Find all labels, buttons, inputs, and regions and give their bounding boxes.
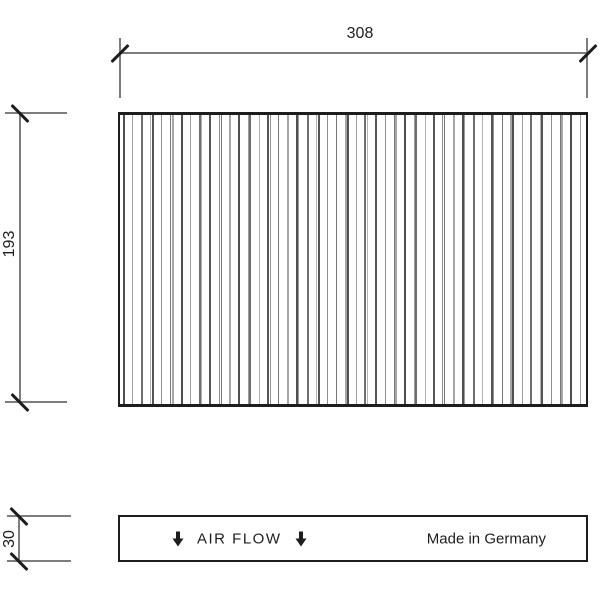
pleat-line [190,115,191,404]
down-arrow-icon [295,531,307,546]
pleat-line [327,115,328,404]
pleat-line [364,115,366,404]
pleat-line [512,115,514,404]
pleat-line [270,115,271,404]
pleat-line [482,115,483,404]
pleat-line [307,115,309,404]
pleat-line [415,115,417,404]
pleat-line [150,115,151,404]
pleat-line [316,115,317,404]
pleat-line [464,115,465,404]
pleat-line [502,115,503,404]
pleat-line [259,115,260,404]
pleat-line [347,115,349,404]
pleat-line [473,115,475,404]
pleat-line [298,115,299,404]
label-box: AIR FLOW Made in Germany [118,515,588,562]
pleat-line [318,115,320,404]
pleat-line [453,115,455,404]
pleat-line [278,115,279,404]
height-extension-line-top [5,112,67,114]
depth-dimension-label: 30 [2,530,18,548]
pleat-line [442,115,443,404]
pleat-line [219,115,220,404]
pleat-line [249,115,251,404]
pleat-line [493,115,494,404]
pleat-line [201,115,202,404]
pleat-line [522,115,523,404]
pleat-container [120,115,586,404]
pleat-line [229,115,231,404]
filter-pleated-element [118,112,588,407]
pleat-line [336,115,337,404]
pleat-line [404,115,406,404]
pleat-line [238,115,240,404]
technical-drawing-canvas: 308 193 30 AIR FLOW Made in Germany [0,0,600,600]
pleat-line [385,115,386,404]
height-dimension-line [19,114,21,403]
pleat-line [570,115,572,404]
height-extension-line-bottom [5,401,67,403]
height-dimension-label: 193 [2,231,18,258]
made-in-germany-label: Made in Germany [427,530,546,547]
pleat-line [161,115,162,404]
pleat-line [172,115,174,404]
pleat-line [541,115,543,404]
pleat-line [221,115,222,404]
width-extension-line-left [119,38,121,98]
depth-dimension-line [18,517,20,562]
pleat-line [551,115,552,404]
air-flow-group: AIR FLOW [172,530,307,547]
air-flow-label: AIR FLOW [197,530,282,547]
pleat-line [375,115,377,404]
pleat-line [530,115,532,404]
pleat-line [170,115,171,404]
pleat-line [433,115,435,404]
pleat-line [561,115,563,404]
pleat-line [367,115,368,404]
width-dimension-line [120,52,588,54]
pleat-line [267,115,269,404]
pleat-line [152,115,154,404]
pleat-line [141,115,143,404]
pleat-line [444,115,445,404]
pleat-line [123,115,125,404]
pleat-line [209,115,211,404]
pleat-line [181,115,183,404]
pleat-line [580,115,581,404]
width-extension-line-right [586,38,588,98]
pleat-line [132,115,133,404]
pleat-line [425,115,426,404]
down-arrow-icon [172,531,184,546]
pleat-line [356,115,357,404]
pleat-line [287,115,289,404]
width-dimension-label: 308 [330,26,390,42]
pleat-line [395,115,397,404]
